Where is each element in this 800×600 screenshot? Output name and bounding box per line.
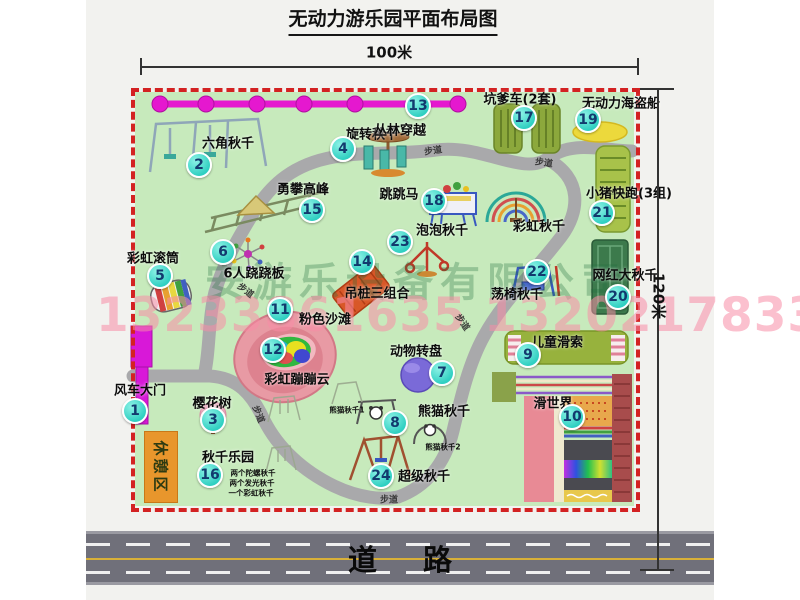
attraction-label: 勇攀高峰 — [277, 179, 329, 198]
height-dim-tick-bottom — [640, 569, 674, 571]
attraction-label: 荡椅秋千 — [491, 284, 543, 303]
attraction-number-badge: 18 — [421, 188, 447, 214]
attraction-number-badge: 14 — [349, 249, 375, 275]
attraction-number-badge: 19 — [575, 107, 601, 133]
road: 道路 — [86, 531, 714, 585]
height-dim-tick-top — [640, 88, 674, 90]
walkway-label: 步道 — [380, 493, 398, 506]
attraction-number-badge: 11 — [267, 297, 293, 323]
walkway-label: 步道 — [534, 154, 554, 169]
attraction-label: 熊猫秋千 — [418, 401, 470, 420]
attraction-number-badge: 1 — [122, 398, 148, 424]
attraction-number-badge: 20 — [605, 284, 631, 310]
attraction-number-badge: 3 — [200, 407, 226, 433]
rest-area-label: 休憩区 — [151, 440, 172, 494]
width-dim-tick-right — [637, 58, 639, 75]
attraction-sub-label: 一个彩虹秋千 — [229, 488, 274, 499]
walkway-label: 步道 — [423, 142, 443, 157]
slide-world-icon — [492, 372, 632, 502]
attraction-label: 吊桩三组合 — [344, 283, 409, 302]
attraction-number-badge: 21 — [589, 200, 615, 226]
attraction-number-badge: 5 — [147, 263, 173, 289]
attraction-number-badge: 7 — [429, 360, 455, 386]
page-title: 无动力游乐园平面布局图 — [288, 4, 497, 36]
height-dimension-line — [657, 88, 659, 570]
height-dimension-label: 120米 — [649, 273, 670, 319]
attraction-label: 泡泡秋千 — [416, 220, 468, 239]
attraction-number-badge: 12 — [260, 337, 286, 363]
attraction-number-badge: 9 — [515, 342, 541, 368]
attraction-label: 六角秋千 — [202, 133, 254, 152]
attraction-label: 6人跷跷板 — [223, 263, 284, 282]
attraction-number-badge: 8 — [382, 410, 408, 436]
attraction-number-badge: 4 — [330, 136, 356, 162]
attraction-label: 跳跳马 — [379, 184, 418, 203]
attraction-number-badge: 17 — [511, 105, 537, 131]
attraction-number-badge: 24 — [368, 463, 394, 489]
attraction-number-badge: 23 — [387, 229, 413, 255]
width-dim-tick-left — [140, 58, 142, 75]
road-label: 道路 — [302, 537, 498, 579]
attraction-label: 彩虹蹦蹦云 — [264, 369, 329, 388]
attraction-label: 粉色沙滩 — [299, 309, 351, 328]
watermark-phone: 13233861635 13202178333 — [96, 288, 800, 343]
attraction-label: 超级秋千 — [398, 466, 450, 485]
attraction-number-badge: 10 — [559, 404, 585, 430]
attraction-sub-label: 熊猫秋千1 — [329, 405, 364, 416]
attraction-sub-label: 熊猫秋千2 — [425, 442, 460, 453]
attraction-number-badge: 15 — [299, 197, 325, 223]
attraction-number-badge: 16 — [197, 462, 223, 488]
attraction-label: 彩虹秋千 — [513, 216, 565, 235]
attraction-label: 小猪快跑(3组) — [586, 183, 672, 202]
width-dimension-line — [140, 66, 638, 68]
attraction-number-badge: 6 — [210, 239, 236, 265]
attraction-number-badge: 22 — [524, 259, 550, 285]
attraction-number-badge: 13 — [405, 93, 431, 119]
attraction-label: 动物转盘 — [390, 341, 442, 360]
attraction-label: 风车大门 — [114, 380, 166, 399]
playground-plan-page: { "title": "无动力游乐园平面布局图", "dimensions": … — [0, 0, 800, 600]
width-dimension-label: 100米 — [366, 42, 412, 63]
rest-area: 休憩区 — [144, 431, 178, 503]
attraction-label: 丛林穿越 — [374, 120, 426, 139]
attraction-number-badge: 2 — [186, 152, 212, 178]
